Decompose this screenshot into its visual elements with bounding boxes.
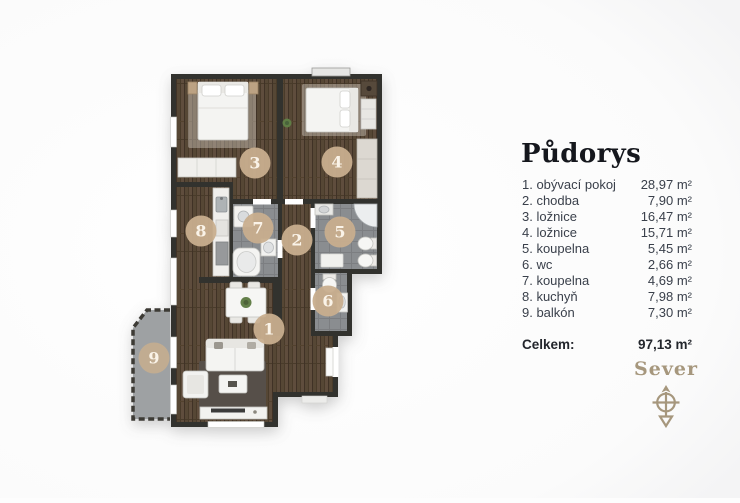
room-area: 16,47 m² — [641, 209, 692, 225]
total-label: Celkem: — [522, 337, 575, 352]
room-label: 2. chodba — [522, 193, 579, 209]
wardrobe — [357, 139, 377, 198]
door-room3 — [253, 199, 271, 205]
doormat — [302, 396, 327, 403]
room-badge-9: 9 — [139, 343, 170, 374]
compass-tail — [660, 416, 672, 426]
room-badge-3: 3 — [240, 148, 271, 179]
faucet — [220, 197, 223, 200]
tv — [211, 409, 245, 413]
pillow — [202, 85, 221, 96]
svg-text:4: 4 — [331, 153, 342, 172]
svg-text:1: 1 — [263, 320, 274, 339]
room-badge-4: 4 — [322, 147, 353, 178]
list-item: 8. kuchyň7,98 m² — [519, 289, 692, 305]
room-area: 28,97 m² — [641, 177, 692, 193]
room-area: 2,66 m² — [648, 257, 692, 273]
pillow — [340, 110, 350, 127]
balcony-door-2 — [171, 385, 177, 414]
room-label: 5. koupelna — [522, 241, 589, 257]
entrance-door-leaf — [326, 348, 333, 376]
svg-text:8: 8 — [195, 222, 206, 241]
room-area: 7,90 m² — [648, 193, 692, 209]
bedroom3-wardrobe — [178, 158, 236, 177]
svg-text:6: 6 — [322, 292, 333, 311]
total-area: 97,13 m² — [638, 337, 692, 352]
window-living-bottom — [208, 422, 264, 428]
room-area: 7,30 m² — [648, 305, 692, 321]
window-room3 — [171, 117, 177, 147]
balcony-door-1 — [171, 337, 177, 368]
list-item: 9. balkón7,30 m² — [519, 305, 692, 321]
window-kitchen — [171, 210, 177, 237]
bath-mat — [321, 254, 343, 267]
room-label: 7. koupelna — [522, 273, 589, 289]
room-label: 8. kuchyň — [522, 289, 578, 305]
compass-arrowhead — [662, 385, 671, 393]
room-label: 3. ložnice — [522, 209, 577, 225]
bidet — [358, 254, 373, 267]
list-item: 7. koupelna4,69 m² — [519, 273, 692, 289]
north-indicator: Sever — [631, 358, 701, 433]
room-area: 15,71 m² — [641, 225, 692, 241]
compass-icon — [646, 384, 686, 428]
svg-text:5: 5 — [334, 223, 345, 242]
room-badge-5: 5 — [325, 217, 356, 248]
pillow — [340, 91, 350, 108]
door-room4 — [285, 199, 303, 205]
entrance-hall-floor — [272, 336, 333, 392]
room-badge-7: 7 — [243, 213, 274, 244]
list-item: 6. wc2,66 m² — [519, 257, 692, 273]
entrance-door — [333, 347, 339, 377]
kitchen-appliance — [216, 220, 228, 236]
shelf — [361, 99, 376, 129]
stove — [216, 242, 228, 265]
list-item: 3. ložnice16,47 m² — [519, 209, 692, 225]
room-list: 1. obývací pokoj28,97 m² 2. chodba7,90 m… — [519, 177, 692, 320]
list-item: 5. koupelna5,45 m² — [519, 241, 692, 257]
svg-text:3: 3 — [249, 154, 260, 173]
sofa-pillow — [247, 342, 256, 349]
total-row: Celkem: 97,13 m² — [519, 337, 692, 352]
list-item: 1. obývací pokoj28,97 m² — [519, 177, 692, 193]
room-label: 1. obývací pokoj — [522, 177, 616, 193]
room-2-floor — [282, 204, 311, 336]
legend-panel: Půdorys 1. obývací pokoj28,97 m² 2. chod… — [519, 141, 692, 352]
toilet — [358, 237, 373, 250]
list-item: 2. chodba7,90 m² — [519, 193, 692, 209]
nightstand — [188, 82, 197, 94]
window-sill-room4 — [312, 68, 350, 76]
room-badge-8: 8 — [186, 216, 217, 247]
list-item: 4. ložnice15,71 m² — [519, 225, 692, 241]
page-title: Půdorys — [521, 141, 692, 168]
room-badge-2: 2 — [282, 225, 313, 256]
svg-text:9: 9 — [148, 349, 159, 368]
room-area: 5,45 m² — [648, 241, 692, 257]
north-label: Sever — [631, 358, 701, 381]
cabinet-knob — [366, 86, 371, 91]
window-living — [171, 258, 177, 305]
room-area: 7,98 m² — [648, 289, 692, 305]
room-label: 6. wc — [522, 257, 552, 273]
room-label: 9. balkón — [522, 305, 575, 321]
pillow — [225, 85, 244, 96]
nightstand — [249, 82, 258, 94]
svg-text:2: 2 — [291, 231, 302, 250]
room-badge-1: 1 — [254, 314, 285, 345]
room-area: 4,69 m² — [648, 273, 692, 289]
sofa-pillow — [214, 342, 223, 349]
room-badge-6: 6 — [313, 286, 344, 317]
svg-text:7: 7 — [252, 219, 263, 238]
room-label: 4. ložnice — [522, 225, 577, 241]
